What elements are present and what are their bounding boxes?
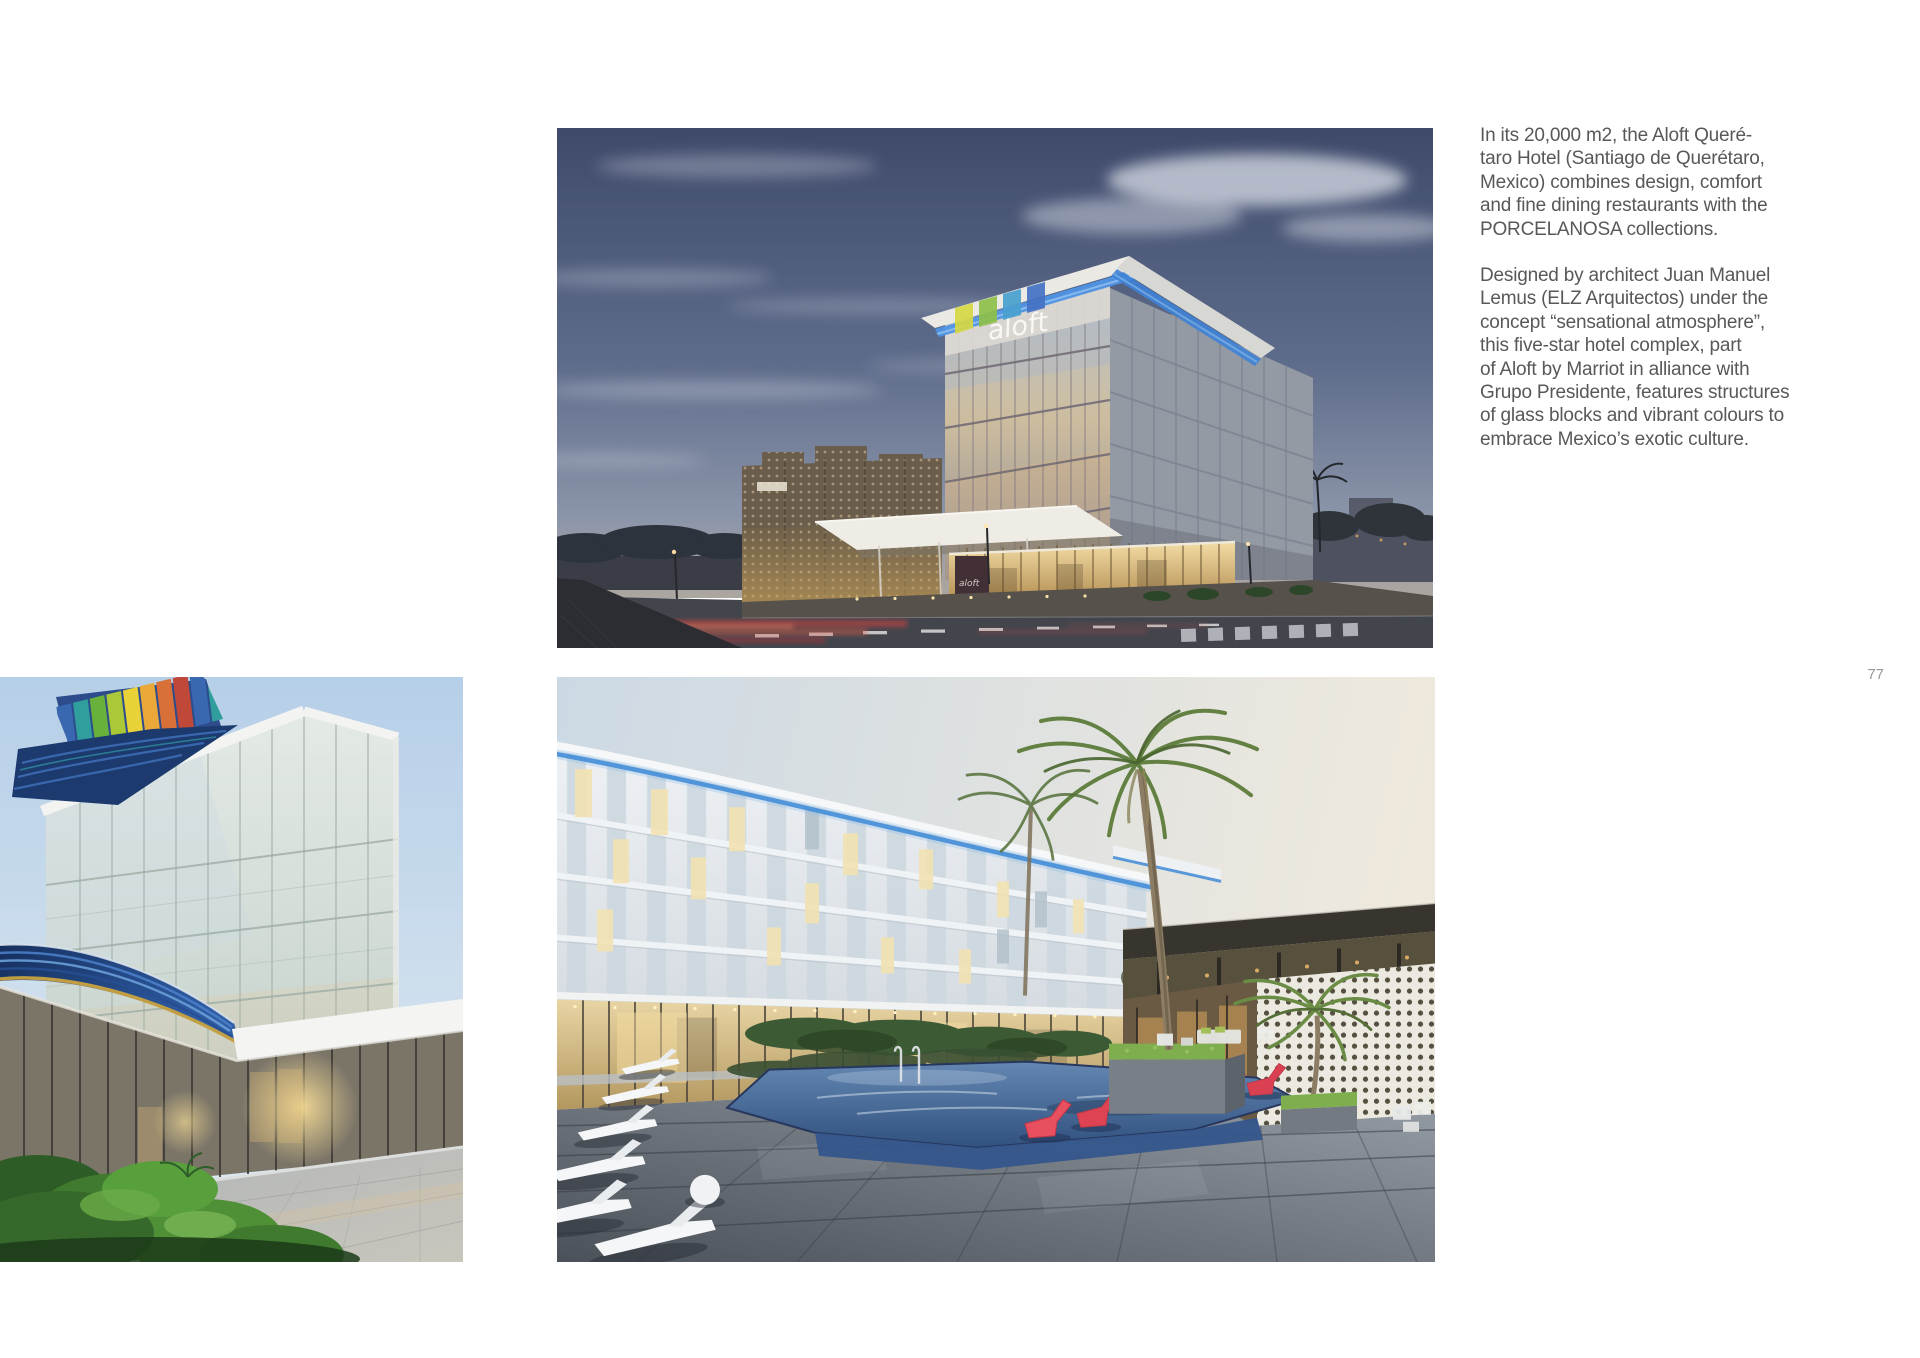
photo-entrance-canopy <box>0 677 463 1262</box>
hotel-exterior-illustration: aloft <box>557 128 1433 648</box>
svg-text:aloft: aloft <box>959 579 980 589</box>
pool-terrace-illustration <box>557 677 1435 1262</box>
stone-wall-trees <box>557 525 761 590</box>
paragraph-intro: In its 20,000 m2, the Aloft Queré- taro … <box>1480 124 1880 241</box>
paragraph-design: Designed by architect Juan Manuel Lemus … <box>1480 264 1880 451</box>
magazine-page: aloft <box>0 0 1920 1358</box>
side-table <box>690 1175 720 1205</box>
photo-pool-terrace <box>557 677 1435 1262</box>
photo-hotel-exterior: aloft <box>557 128 1433 648</box>
entrance-illustration <box>0 677 463 1262</box>
article-text: In its 20,000 m2, the Aloft Queré- taro … <box>1480 124 1880 474</box>
page-number: 77 <box>1867 666 1884 683</box>
